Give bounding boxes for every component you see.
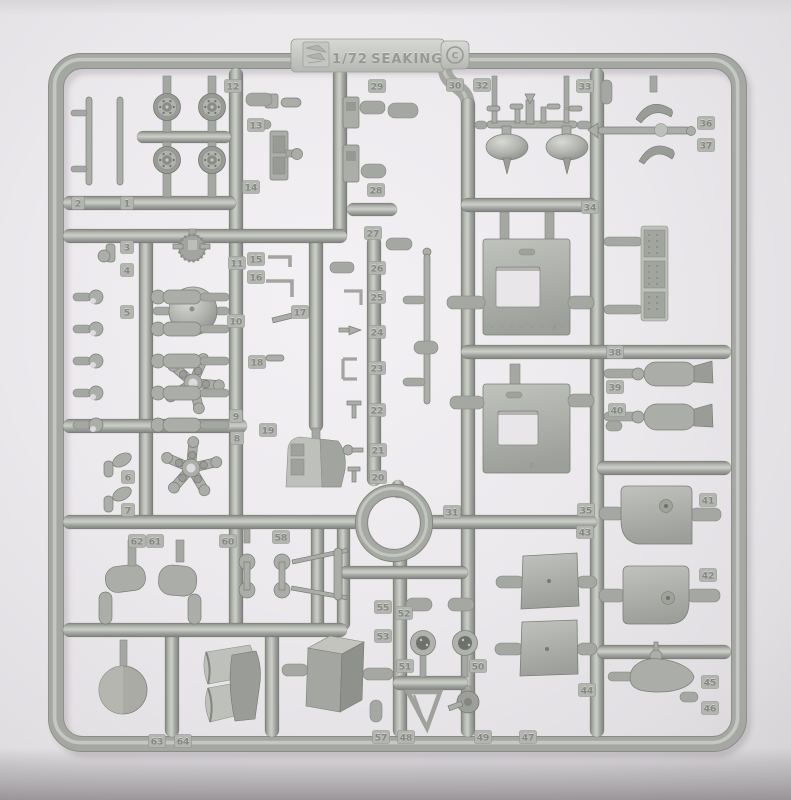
svg-text:12: 12 — [227, 82, 240, 92]
svg-text:44: 44 — [581, 686, 594, 696]
part-number-tag: 2121 — [370, 444, 387, 457]
svg-text:23: 23 — [371, 364, 384, 374]
svg-text:46: 46 — [704, 704, 717, 714]
svg-text:24: 24 — [371, 328, 384, 338]
svg-text:55: 55 — [377, 603, 390, 613]
svg-text:60: 60 — [222, 537, 235, 547]
engine-cowl-parts — [204, 645, 261, 722]
part-number-tag: 6464 — [175, 735, 192, 748]
part-number-tag: 33 — [121, 241, 134, 254]
part-number-tag: 6262 — [129, 535, 146, 548]
part-number-tag: 4343 — [577, 526, 594, 539]
tab-kit-name-text: SEAKING — [371, 52, 443, 67]
part-number-tag: 2727 — [365, 227, 382, 240]
part-number-tag: 4141 — [700, 494, 717, 507]
part-number-tag: 2525 — [369, 291, 386, 304]
manufacturer-logo-icon — [303, 42, 329, 67]
part-number-tag: 2222 — [369, 404, 386, 417]
svg-text:11: 11 — [231, 259, 244, 269]
part-number-tag: 2323 — [369, 362, 386, 375]
part-number-tag: 4444 — [579, 684, 596, 697]
part-number-tag: 1717 — [292, 306, 309, 319]
part-number-tag: 2020 — [370, 471, 387, 484]
part-number-tag: 3434 — [582, 201, 599, 214]
part-number-tag: 5858 — [273, 531, 290, 544]
svg-text:22: 22 — [371, 406, 384, 416]
part-number-tag: 22 — [72, 197, 85, 210]
part-number-tag: 3333 — [577, 80, 594, 93]
part-number-tag: 5252 — [396, 607, 413, 620]
svg-text:47: 47 — [522, 733, 535, 743]
svg-text:33: 33 — [579, 82, 592, 92]
svg-text:43: 43 — [579, 528, 592, 538]
svg-text:26: 26 — [371, 264, 384, 274]
svg-text:27: 27 — [367, 229, 380, 239]
part-number-tag: 2424 — [369, 326, 386, 339]
svg-text:17: 17 — [294, 308, 307, 318]
svg-text:37: 37 — [700, 141, 713, 151]
part-number-tag: 3838 — [607, 346, 624, 359]
svg-text:5: 5 — [124, 308, 130, 318]
svg-text:63: 63 — [151, 737, 164, 747]
part-number-tag: 2929 — [369, 80, 386, 93]
part-number-tag: 5555 — [375, 601, 392, 614]
svg-text:7: 7 — [125, 506, 131, 516]
part-number-tag: 4242 — [700, 569, 717, 582]
part-number-tag: 6363 — [149, 735, 166, 748]
svg-text:32: 32 — [476, 81, 489, 91]
svg-text:28: 28 — [370, 186, 383, 196]
svg-text:49: 49 — [477, 733, 490, 743]
svg-text:31: 31 — [446, 508, 459, 518]
svg-text:35: 35 — [580, 506, 593, 516]
svg-text:62: 62 — [131, 537, 144, 547]
svg-text:19: 19 — [262, 426, 275, 436]
svg-text:29: 29 — [371, 82, 384, 92]
part-number-tag: 11 — [121, 197, 134, 210]
svg-text:18: 18 — [251, 358, 264, 368]
part-number-tag: 4545 — [702, 676, 719, 689]
part-number-tag: 66 — [122, 471, 135, 484]
part-number-tag: 3636 — [698, 117, 715, 130]
part-number-tag: 77 — [122, 504, 135, 517]
part-number-tag: 1818 — [249, 356, 266, 369]
svg-text:14: 14 — [245, 183, 258, 193]
svg-text:10: 10 — [230, 317, 243, 327]
svg-text:8: 8 — [234, 434, 240, 444]
part-number-tag: 1616 — [248, 271, 265, 284]
svg-text:40: 40 — [611, 406, 624, 416]
part-number-tag: 3030 — [447, 79, 464, 92]
part-number-tag: 1010 — [228, 315, 245, 328]
svg-text:30: 30 — [449, 81, 462, 91]
svg-text:52: 52 — [398, 609, 411, 619]
svg-text:3: 3 — [124, 243, 130, 253]
model-sprue-photograph: F F — [0, 0, 791, 800]
svg-text:1: 1 — [124, 199, 130, 209]
svg-text:16: 16 — [250, 273, 263, 283]
sprue-photo: F F — [0, 0, 791, 800]
part-number-tag: 2828 — [368, 184, 385, 197]
part-number-tag: 3737 — [698, 139, 715, 152]
part-number-tag: 1919 — [260, 424, 277, 437]
svg-text:34: 34 — [584, 203, 597, 213]
part-number-tag: 88 — [231, 432, 244, 445]
svg-text:6: 6 — [125, 473, 131, 483]
copyright-letter: C — [452, 52, 459, 62]
svg-text:64: 64 — [177, 737, 190, 747]
svg-text:38: 38 — [609, 348, 622, 358]
svg-text:53: 53 — [377, 632, 390, 642]
svg-text:4: 4 — [124, 266, 130, 276]
svg-text:45: 45 — [704, 678, 717, 688]
part-number-tag: 1212 — [225, 80, 242, 93]
svg-text:51: 51 — [399, 662, 412, 672]
svg-text:20: 20 — [372, 473, 385, 483]
part-number-tag: 1414 — [243, 181, 260, 194]
svg-text:2: 2 — [75, 199, 81, 209]
part-number-tag: 6060 — [220, 535, 237, 548]
part-number-tag: 1111 — [229, 257, 246, 270]
photo-top-shade — [0, 0, 791, 16]
svg-text:39: 39 — [609, 383, 622, 393]
svg-text:57: 57 — [375, 733, 388, 743]
part-number-tag: 4040 — [609, 404, 626, 417]
part-number-tag: 1515 — [248, 253, 265, 266]
part-number-tag: 3939 — [607, 381, 624, 394]
part-number-tag: 3131 — [444, 506, 461, 519]
part-number-tag: 55 — [121, 306, 134, 319]
part-number-tag: 4949 — [475, 731, 492, 744]
part-number-tag: 4848 — [398, 731, 415, 744]
svg-text:42: 42 — [702, 571, 715, 581]
svg-text:25: 25 — [371, 293, 384, 303]
part-number-tag: 5050 — [470, 660, 487, 673]
svg-text:9: 9 — [233, 412, 239, 422]
svg-text:13: 13 — [250, 121, 263, 131]
part-number-tag: 2626 — [369, 262, 386, 275]
part-number-tag: 5151 — [397, 660, 414, 673]
svg-text:58: 58 — [275, 533, 288, 543]
svg-text:36: 36 — [700, 119, 713, 129]
tab-scale-text: 1/72 — [332, 52, 368, 67]
svg-text:50: 50 — [472, 662, 485, 672]
svg-text:48: 48 — [400, 733, 413, 743]
molding-label-tab: 1/72 1/72 SEAKING SEAKING C — [291, 39, 469, 72]
part-number-tag: 5757 — [373, 731, 390, 744]
svg-text:15: 15 — [250, 255, 263, 265]
part-number-tag: 44 — [121, 264, 134, 277]
svg-text:61: 61 — [149, 537, 162, 547]
part-number-tag: 99 — [230, 410, 243, 423]
svg-text:41: 41 — [702, 496, 715, 506]
part-number-tag: 5353 — [375, 630, 392, 643]
svg-text:21: 21 — [372, 446, 385, 456]
part-number-tag: 4646 — [702, 702, 719, 715]
part-number-tag: 3535 — [578, 504, 595, 517]
part-number-tag: 4747 — [520, 731, 537, 744]
part-number-tag: 6161 — [147, 535, 164, 548]
part-number-tag: 3232 — [474, 79, 491, 92]
part-number-tag: 1313 — [248, 119, 265, 132]
